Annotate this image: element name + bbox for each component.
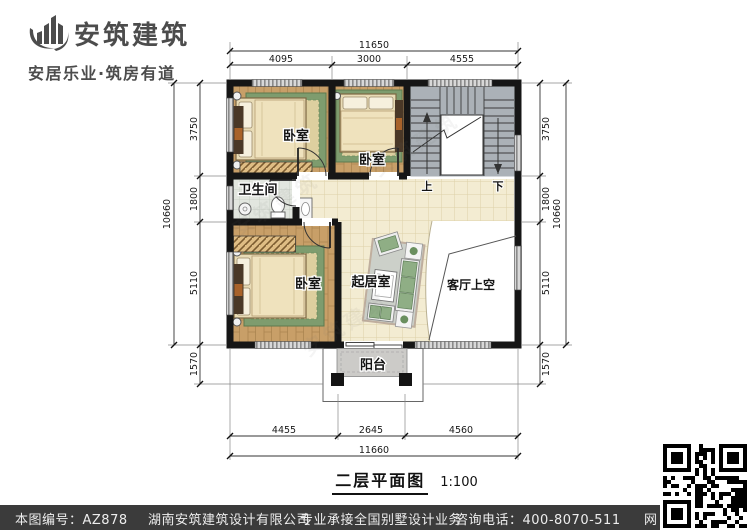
room-label-bedroom-bottom-left: 卧室	[295, 276, 321, 292]
dim-right-seg2: 1800	[541, 187, 552, 211]
dim-top-total: 11650	[359, 40, 389, 51]
dim-right-total: 10660	[552, 199, 563, 229]
dim-left-seg4: 1570	[189, 352, 200, 376]
dim-left-seg1: 3750	[189, 117, 200, 141]
drawing-scale: 1:100	[440, 475, 477, 490]
drawing-title: 二层平面图	[332, 467, 428, 495]
footer-service: 专业承接全国别墅设计业务	[300, 509, 462, 528]
stairs-down-label: 下	[493, 180, 504, 193]
footer-phone: 咨询电话：400-8070-511	[455, 509, 621, 528]
dim-right-seg1: 3750	[541, 117, 552, 141]
dim-left-total: 10660	[162, 199, 173, 229]
balcony	[323, 349, 423, 402]
dim-right-seg4: 1570	[541, 352, 552, 376]
dim-bottom-seg3: 4560	[449, 425, 473, 436]
dim-right-seg3: 5110	[541, 271, 552, 295]
footer-company: 湖南安筑建筑设计有限公司	[148, 509, 310, 528]
dim-bottom-seg2: 2645	[359, 425, 383, 436]
footer-drawing-number: 本图编号：AZ878	[15, 509, 128, 528]
dim-top-seg2: 3000	[357, 54, 381, 65]
footer-bar: 本图编号：AZ878 湖南安筑建筑设计有限公司 专业承接全国别墅设计业务 咨询电…	[0, 505, 750, 530]
room-label-bedroom-top-left: 卧室	[283, 128, 309, 144]
qr-code-box	[660, 441, 750, 530]
dim-top-seg3: 4555	[450, 54, 474, 65]
room-label-living-room: 起居室	[350, 274, 390, 290]
qr-code	[663, 444, 747, 528]
title-block: 二层平面图 1:100	[30, 467, 750, 495]
page: 安筑建筑 安居乐业·筑房有道	[0, 0, 750, 530]
dim-top-seg1: 4095	[269, 54, 293, 65]
dim-left-seg2: 1800	[189, 187, 200, 211]
stairs-up-label: 上	[422, 179, 433, 193]
floor-plan: 11650 4095 3000 4555 4455 2645 4560 1166…	[0, 0, 750, 505]
room-label-living-void: 客厅上空	[446, 277, 495, 292]
room-label-balcony: 阳台	[360, 357, 386, 373]
footer-web-char: 网	[644, 509, 658, 528]
dim-bottom-total: 11660	[359, 445, 389, 456]
dim-bottom-seg1: 4455	[272, 425, 296, 436]
dim-left-seg3: 5110	[189, 271, 200, 295]
bedroom-top-left-furniture	[233, 92, 326, 173]
